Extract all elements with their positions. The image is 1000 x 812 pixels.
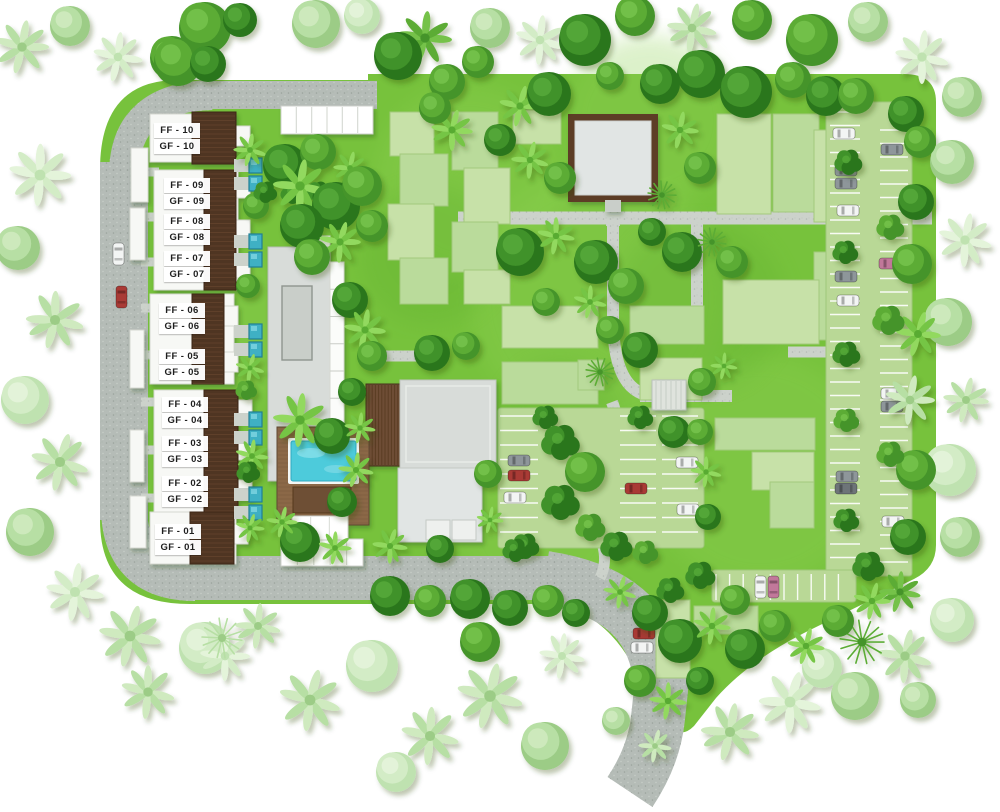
unit-porch bbox=[130, 330, 144, 388]
unit-label-gf: GF - 06 bbox=[159, 319, 205, 334]
tree-round bbox=[640, 64, 680, 104]
tree-round bbox=[720, 66, 772, 118]
tree-palm bbox=[938, 213, 992, 267]
tree-round bbox=[725, 629, 765, 669]
building-pad bbox=[723, 280, 819, 344]
townhouse-roof bbox=[204, 390, 238, 512]
tree-round bbox=[376, 752, 416, 792]
tree-round bbox=[492, 590, 528, 626]
unit-label-ff: FF - 08 bbox=[164, 214, 210, 229]
tree-palm bbox=[539, 633, 585, 679]
car bbox=[631, 642, 653, 653]
tree-round bbox=[608, 268, 644, 304]
tree-round bbox=[662, 232, 702, 272]
tree-round bbox=[327, 487, 357, 517]
building-pad bbox=[464, 270, 510, 304]
unit-label-gf: GF - 07 bbox=[164, 267, 210, 282]
tree-round bbox=[720, 585, 750, 615]
tree-palm bbox=[46, 563, 105, 622]
unit-label-gf: GF - 09 bbox=[164, 194, 210, 209]
tree-palm bbox=[943, 377, 989, 423]
car bbox=[837, 205, 859, 216]
tree-round bbox=[890, 519, 926, 555]
tree-round bbox=[450, 579, 490, 619]
building-pad bbox=[464, 168, 510, 224]
tree-round bbox=[294, 239, 330, 275]
tree-round bbox=[688, 368, 716, 396]
tree-round bbox=[474, 460, 502, 488]
tree-palm bbox=[401, 707, 460, 766]
community-hall-entry bbox=[605, 200, 621, 212]
tree-palm bbox=[515, 15, 565, 65]
tree-round bbox=[716, 246, 748, 278]
tree-round bbox=[658, 619, 702, 663]
tree-palm bbox=[93, 32, 143, 82]
tree-palm bbox=[121, 665, 175, 719]
tree-round bbox=[732, 0, 772, 40]
clubhouse-seat bbox=[452, 520, 476, 540]
tree-round bbox=[470, 8, 510, 48]
tree-round bbox=[370, 576, 410, 616]
unit-label-gf: GF - 04 bbox=[162, 413, 208, 428]
building-pad bbox=[400, 258, 448, 304]
unit-label-gf: GF - 03 bbox=[162, 452, 208, 467]
tree-round bbox=[565, 452, 605, 492]
tree-palm bbox=[0, 20, 49, 74]
unit-label-gf: GF - 08 bbox=[164, 230, 210, 245]
unit-label-ff: FF - 04 bbox=[162, 397, 208, 412]
tree-round bbox=[344, 0, 380, 34]
tree-round bbox=[900, 682, 936, 718]
tree-round bbox=[898, 184, 934, 220]
plunge-pool-pad bbox=[234, 235, 249, 248]
tree-round bbox=[332, 282, 368, 318]
tree-round bbox=[559, 14, 611, 66]
unit-label-gf: GF - 02 bbox=[162, 492, 208, 507]
apartment-courtyard bbox=[282, 286, 312, 360]
tree-round bbox=[0, 226, 40, 270]
tree-round bbox=[892, 244, 932, 284]
site-plan-canvas bbox=[0, 0, 1000, 812]
building-pad bbox=[773, 114, 819, 212]
tree-round bbox=[624, 665, 656, 697]
car bbox=[113, 243, 124, 265]
tree-round bbox=[775, 62, 811, 98]
building-pad bbox=[452, 222, 498, 272]
building-pad bbox=[400, 154, 448, 206]
tree-round bbox=[338, 378, 366, 406]
car bbox=[836, 471, 858, 482]
tree-palm bbox=[878, 629, 932, 683]
tree-round bbox=[658, 416, 690, 448]
car bbox=[837, 295, 859, 306]
tree-round bbox=[527, 72, 571, 116]
tree-round bbox=[532, 288, 560, 316]
tree-round bbox=[521, 722, 569, 770]
community-hall-roof bbox=[575, 121, 651, 195]
plunge-pool-pad bbox=[234, 506, 249, 519]
unit-label-gf: GF - 10 bbox=[154, 139, 200, 154]
clubhouse-building bbox=[400, 380, 496, 468]
tree-round bbox=[6, 508, 54, 556]
unit-porch bbox=[130, 208, 145, 260]
unit-porch bbox=[130, 496, 146, 548]
tree-round bbox=[686, 667, 714, 695]
tree-palm bbox=[99, 605, 162, 668]
tree-round bbox=[1, 376, 49, 424]
car bbox=[508, 455, 530, 466]
tree-round bbox=[622, 332, 658, 368]
tree-round bbox=[677, 50, 725, 98]
building-pad bbox=[715, 418, 815, 450]
tree-round bbox=[223, 3, 257, 37]
unit-label-ff: FF - 02 bbox=[162, 476, 208, 491]
plunge-pool-pad bbox=[234, 253, 249, 266]
tree-round bbox=[414, 585, 446, 617]
tree-round bbox=[190, 46, 226, 82]
unit-label-ff: FF - 07 bbox=[164, 251, 210, 266]
tree-round bbox=[615, 0, 655, 36]
tree-round bbox=[292, 0, 340, 48]
plunge-pool-pad bbox=[234, 413, 249, 426]
tree-round bbox=[638, 218, 666, 246]
tree-palm bbox=[279, 669, 341, 732]
tree-round bbox=[695, 504, 721, 530]
tree-palm bbox=[26, 291, 85, 349]
tree-round bbox=[342, 166, 382, 206]
tree-round bbox=[930, 140, 974, 184]
car bbox=[116, 286, 127, 308]
tree-round bbox=[786, 14, 838, 66]
tree-round bbox=[930, 598, 974, 642]
townhouse-porch bbox=[224, 306, 238, 326]
car bbox=[755, 576, 766, 598]
car bbox=[881, 144, 903, 155]
unit-porch bbox=[131, 148, 148, 202]
unit-label-gf: GF - 05 bbox=[159, 365, 205, 380]
tree-round bbox=[462, 46, 494, 78]
car bbox=[676, 457, 698, 468]
plunge-pool-pad bbox=[234, 343, 249, 356]
tree-round bbox=[759, 610, 791, 642]
tree-palm bbox=[701, 703, 760, 762]
tree-round bbox=[544, 162, 576, 194]
car bbox=[835, 178, 857, 189]
tree-round bbox=[942, 77, 982, 117]
tree-round bbox=[374, 32, 422, 80]
tree-round bbox=[357, 341, 387, 371]
tree-round bbox=[419, 92, 451, 124]
unit-label-ff: FF - 03 bbox=[162, 436, 208, 451]
tree-round bbox=[596, 316, 624, 344]
tree-round bbox=[356, 210, 388, 242]
tree-round bbox=[346, 640, 398, 692]
tree-round bbox=[848, 2, 888, 42]
tree-round bbox=[460, 622, 500, 662]
unit-label-ff: FF - 06 bbox=[159, 303, 205, 318]
tree-round bbox=[940, 517, 980, 557]
building-pad bbox=[770, 482, 814, 528]
car bbox=[625, 483, 647, 494]
tree-round bbox=[452, 332, 480, 360]
plunge-pool-pad bbox=[234, 488, 249, 501]
unit-porch bbox=[130, 430, 144, 482]
unit-label-ff: FF - 01 bbox=[155, 524, 201, 539]
tree-round bbox=[632, 595, 668, 631]
tree-round bbox=[822, 605, 854, 637]
tree-round bbox=[687, 419, 713, 445]
tree-round bbox=[904, 126, 936, 158]
plunge-pool-pad bbox=[234, 325, 249, 338]
tree-round bbox=[596, 62, 624, 90]
tree-palm bbox=[9, 144, 72, 207]
unit-label-ff: FF - 05 bbox=[159, 349, 205, 364]
car bbox=[833, 128, 855, 139]
tree-palm bbox=[31, 433, 89, 491]
tree-round bbox=[562, 599, 590, 627]
tree-round bbox=[426, 535, 454, 563]
plunge-pool-pad bbox=[234, 431, 249, 444]
car bbox=[508, 470, 530, 481]
tree-round bbox=[236, 274, 260, 298]
tree-round bbox=[496, 228, 544, 276]
tree-round bbox=[838, 78, 874, 114]
tree-palm bbox=[457, 662, 524, 729]
building-pad bbox=[717, 114, 771, 214]
car bbox=[835, 483, 857, 494]
unit-label-gf: GF - 01 bbox=[155, 540, 201, 555]
tree-round bbox=[532, 585, 564, 617]
tree-round bbox=[414, 335, 450, 371]
tree-round bbox=[602, 707, 630, 735]
car bbox=[504, 492, 526, 503]
car bbox=[768, 576, 779, 598]
site-plan: FF - 10GF - 10FF - 09GF - 09FF - 08GF - … bbox=[0, 0, 1000, 812]
tree-round bbox=[484, 124, 516, 156]
building-pad bbox=[388, 204, 434, 260]
unit-label-ff: FF - 09 bbox=[164, 178, 210, 193]
tree-round bbox=[314, 418, 350, 454]
plunge-pool-pad bbox=[234, 177, 249, 190]
tree-round bbox=[50, 6, 90, 46]
unit-label-ff: FF - 10 bbox=[154, 123, 200, 138]
car bbox=[835, 271, 857, 282]
tree-round bbox=[684, 152, 716, 184]
